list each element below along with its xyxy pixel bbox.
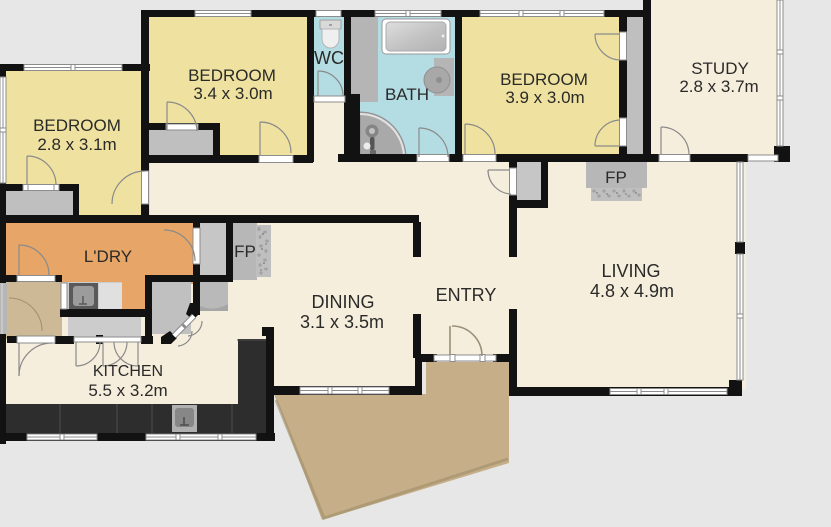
svg-text:3.9 x 3.0m: 3.9 x 3.0m bbox=[505, 88, 584, 107]
svg-text:WC: WC bbox=[314, 48, 344, 68]
svg-text:BATH: BATH bbox=[385, 85, 429, 104]
svg-text:L'DRY: L'DRY bbox=[84, 247, 132, 266]
svg-text:4.8 x 4.9m: 4.8 x 4.9m bbox=[590, 281, 674, 301]
svg-text:LIVING: LIVING bbox=[601, 261, 660, 281]
svg-text:BEDROOM: BEDROOM bbox=[33, 116, 121, 135]
svg-text:FP: FP bbox=[234, 242, 256, 261]
svg-text:KITCHEN: KITCHEN bbox=[93, 363, 163, 380]
svg-text:FP: FP bbox=[605, 168, 627, 187]
svg-text:3.4 x 3.0m: 3.4 x 3.0m bbox=[193, 84, 272, 103]
svg-text:DINING: DINING bbox=[312, 292, 375, 312]
svg-text:5.5 x 3.2m: 5.5 x 3.2m bbox=[88, 381, 167, 400]
svg-text:STUDY: STUDY bbox=[691, 59, 749, 78]
svg-text:ENTRY: ENTRY bbox=[436, 285, 497, 305]
svg-text:2.8 x 3.1m: 2.8 x 3.1m bbox=[37, 135, 116, 154]
svg-text:2.8 x 3.7m: 2.8 x 3.7m bbox=[679, 77, 758, 96]
svg-text:3.1 x 3.5m: 3.1 x 3.5m bbox=[300, 312, 384, 332]
svg-text:BEDROOM: BEDROOM bbox=[188, 66, 276, 85]
svg-text:BEDROOM: BEDROOM bbox=[500, 70, 588, 89]
